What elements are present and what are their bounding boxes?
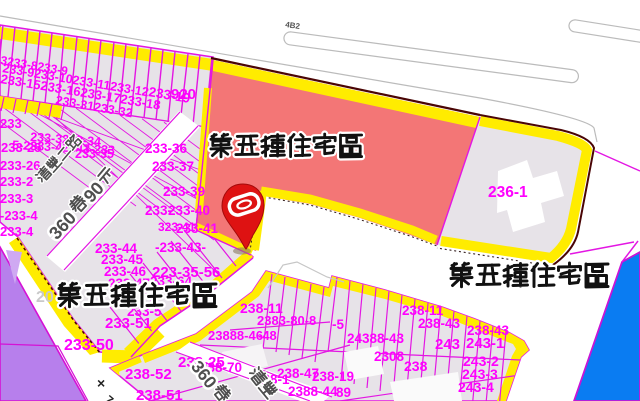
svg-text:233-37: 233-37 xyxy=(152,159,194,174)
svg-text:2308: 2308 xyxy=(374,349,405,364)
svg-text:236-1: 236-1 xyxy=(488,184,528,201)
svg-text:-233-4: -233-4 xyxy=(0,208,38,223)
svg-text:238-52: 238-52 xyxy=(125,366,172,383)
svg-text:-48: -48 xyxy=(258,328,277,343)
svg-text:233-35: 233-35 xyxy=(75,147,114,161)
svg-text:323-41: 323-41 xyxy=(158,220,196,234)
svg-text:233-39: 233-39 xyxy=(163,184,205,199)
svg-text:233-25: 233-25 xyxy=(1,140,41,155)
svg-text:233-40: 233-40 xyxy=(168,203,210,218)
svg-text:23888-46: 23888-46 xyxy=(208,328,263,343)
svg-text:-233-43-: -233-43- xyxy=(155,240,206,255)
svg-text:20: 20 xyxy=(36,289,54,306)
svg-text:-5: -5 xyxy=(332,317,344,332)
svg-text:920: 920 xyxy=(171,86,196,103)
svg-text:238: 238 xyxy=(404,358,428,374)
svg-text:238-43: 238-43 xyxy=(418,316,461,331)
svg-text:24388-43: 24388-43 xyxy=(347,331,405,346)
svg-text:238-47: 238-47 xyxy=(277,366,319,381)
svg-text:×: × xyxy=(97,375,105,391)
svg-text:233-2: 233-2 xyxy=(0,174,33,189)
svg-text:2383-80-8: 2383-80-8 xyxy=(257,313,316,328)
svg-text:233-36: 233-36 xyxy=(145,141,188,156)
svg-text:233-3: 233-3 xyxy=(0,191,33,206)
svg-text:233-51: 233-51 xyxy=(105,315,152,332)
svg-text:243-4: 243-4 xyxy=(458,379,494,395)
svg-text:2388-44: 2388-44 xyxy=(288,384,338,399)
svg-text:243: 243 xyxy=(435,336,460,353)
svg-text:233-26: 233-26 xyxy=(0,158,40,173)
svg-text:233-4: 233-4 xyxy=(0,224,34,239)
svg-text:243-1: 243-1 xyxy=(466,335,504,352)
svg-text:233: 233 xyxy=(0,116,22,131)
svg-text:238-51: 238-51 xyxy=(136,387,183,401)
svg-text:233-50: 233-50 xyxy=(64,337,114,354)
svg-text:89: 89 xyxy=(336,385,351,400)
